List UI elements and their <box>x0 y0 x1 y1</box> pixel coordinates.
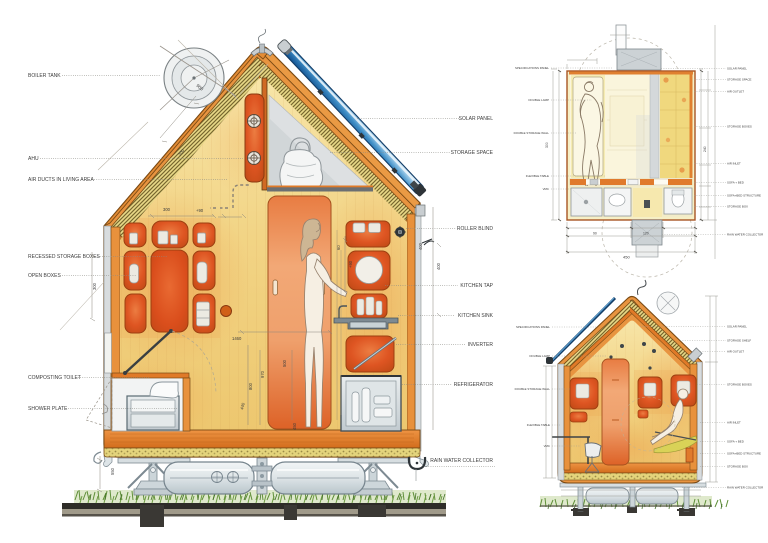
svg-text:AIR INLET: AIR INLET <box>727 162 741 166</box>
svg-text:550: 550 <box>110 467 115 475</box>
svg-text:+90: +90 <box>196 208 204 213</box>
svg-text:450: 450 <box>623 255 630 260</box>
svg-text:STORAGE BOX: STORAGE BOX <box>727 205 748 209</box>
svg-text:240: 240 <box>703 146 707 152</box>
svg-text:ROLLER BLIND: ROLLER BLIND <box>457 226 494 232</box>
svg-text:INVERTER: INVERTER <box>468 342 494 348</box>
svg-text:SOFA+BED STRUCTURE: SOFA+BED STRUCTURE <box>727 194 761 198</box>
svg-text:SOFA + BED: SOFA + BED <box>727 181 744 185</box>
svg-text:DOUBLE STORAGE WALL: DOUBLE STORAGE WALL <box>515 387 551 391</box>
svg-text:300: 300 <box>545 142 549 148</box>
svg-text:RAIN WATER COLLECTOR: RAIN WATER COLLECTOR <box>430 458 493 464</box>
svg-text:SOLAR PANEL: SOLAR PANEL <box>459 116 494 122</box>
svg-text:120: 120 <box>643 232 649 236</box>
svg-text:DOUBLE LAMP: DOUBLE LAMP <box>528 98 549 102</box>
svg-text:970: 970 <box>260 370 265 378</box>
svg-text:SHOWER PLATE: SHOWER PLATE <box>28 406 68 412</box>
svg-text:SPECIFICATIONS PANEL: SPECIFICATIONS PANEL <box>516 325 550 329</box>
svg-text:RAIN WATER COLLECTOR: RAIN WATER COLLECTOR <box>727 486 763 490</box>
svg-text:STORAGE BOXES: STORAGE BOXES <box>727 383 752 387</box>
svg-text:SPECIFICATIONS PANEL: SPECIFICATIONS PANEL <box>515 66 549 70</box>
svg-text:AIR OUTLET: AIR OUTLET <box>727 350 744 354</box>
svg-text:300: 300 <box>163 207 171 212</box>
svg-text:STORAGE SPACE: STORAGE SPACE <box>727 78 752 82</box>
svg-text:FLEXIBLE TABLE: FLEXIBLE TABLE <box>527 423 550 427</box>
svg-text:REFRIGERATOR: REFRIGERATOR <box>454 382 494 388</box>
svg-text:AIR INLET: AIR INLET <box>727 421 741 425</box>
svg-text:STORAGE BOX: STORAGE BOX <box>727 465 748 469</box>
svg-text:500: 500 <box>282 359 287 367</box>
svg-text:STORAGE SPACE: STORAGE SPACE <box>451 150 494 156</box>
svg-text:VMC: VMC <box>544 444 550 448</box>
svg-text:SOLAR PANEL: SOLAR PANEL <box>727 325 747 329</box>
svg-text:SOFA+BED STRUCTURE: SOFA+BED STRUCTURE <box>727 452 761 456</box>
svg-text:400: 400 <box>418 242 423 250</box>
svg-text:AIR DUCTS IN LIVING AREA: AIR DUCTS IN LIVING AREA <box>28 177 95 183</box>
svg-text:300: 300 <box>92 282 97 290</box>
svg-text:90: 90 <box>593 232 597 236</box>
svg-text:SOLAR PANEL: SOLAR PANEL <box>727 67 747 71</box>
svg-text:AHU: AHU <box>28 156 39 162</box>
svg-text:+90: +90 <box>348 260 353 268</box>
svg-text:RAIN WATER COLLECTOR: RAIN WATER COLLECTOR <box>727 233 763 237</box>
svg-text:OPEN BOXES: OPEN BOXES <box>28 273 61 279</box>
svg-text:KITCHEN SINK: KITCHEN SINK <box>458 313 494 319</box>
svg-text:VMC: VMC <box>543 187 549 191</box>
svg-text:DOUBLE LAMP: DOUBLE LAMP <box>529 354 550 358</box>
svg-text:450: 450 <box>292 422 297 430</box>
svg-text:STORAGE BOXES: STORAGE BOXES <box>727 125 752 129</box>
svg-text:COMPOSTING TOILET: COMPOSTING TOILET <box>28 375 81 381</box>
svg-text:FLEXIBLE TABLE: FLEXIBLE TABLE <box>526 174 549 178</box>
svg-text:BOILER TANK: BOILER TANK <box>28 73 61 79</box>
svg-text:SOFA + BED: SOFA + BED <box>727 440 744 444</box>
svg-text:400: 400 <box>436 262 441 270</box>
svg-text:1460: 1460 <box>232 336 242 341</box>
svg-text:RECESSED STORAGE BOXES: RECESSED STORAGE BOXES <box>28 254 101 260</box>
svg-text:STORAGE SHELF: STORAGE SHELF <box>727 339 751 343</box>
svg-text:KITCHEN TAP: KITCHEN TAP <box>460 283 493 289</box>
svg-text:AIR OUTLET: AIR OUTLET <box>727 90 744 94</box>
svg-text:DOUBLE STORAGE WALL: DOUBLE STORAGE WALL <box>514 131 550 135</box>
svg-text:800: 800 <box>248 382 253 390</box>
